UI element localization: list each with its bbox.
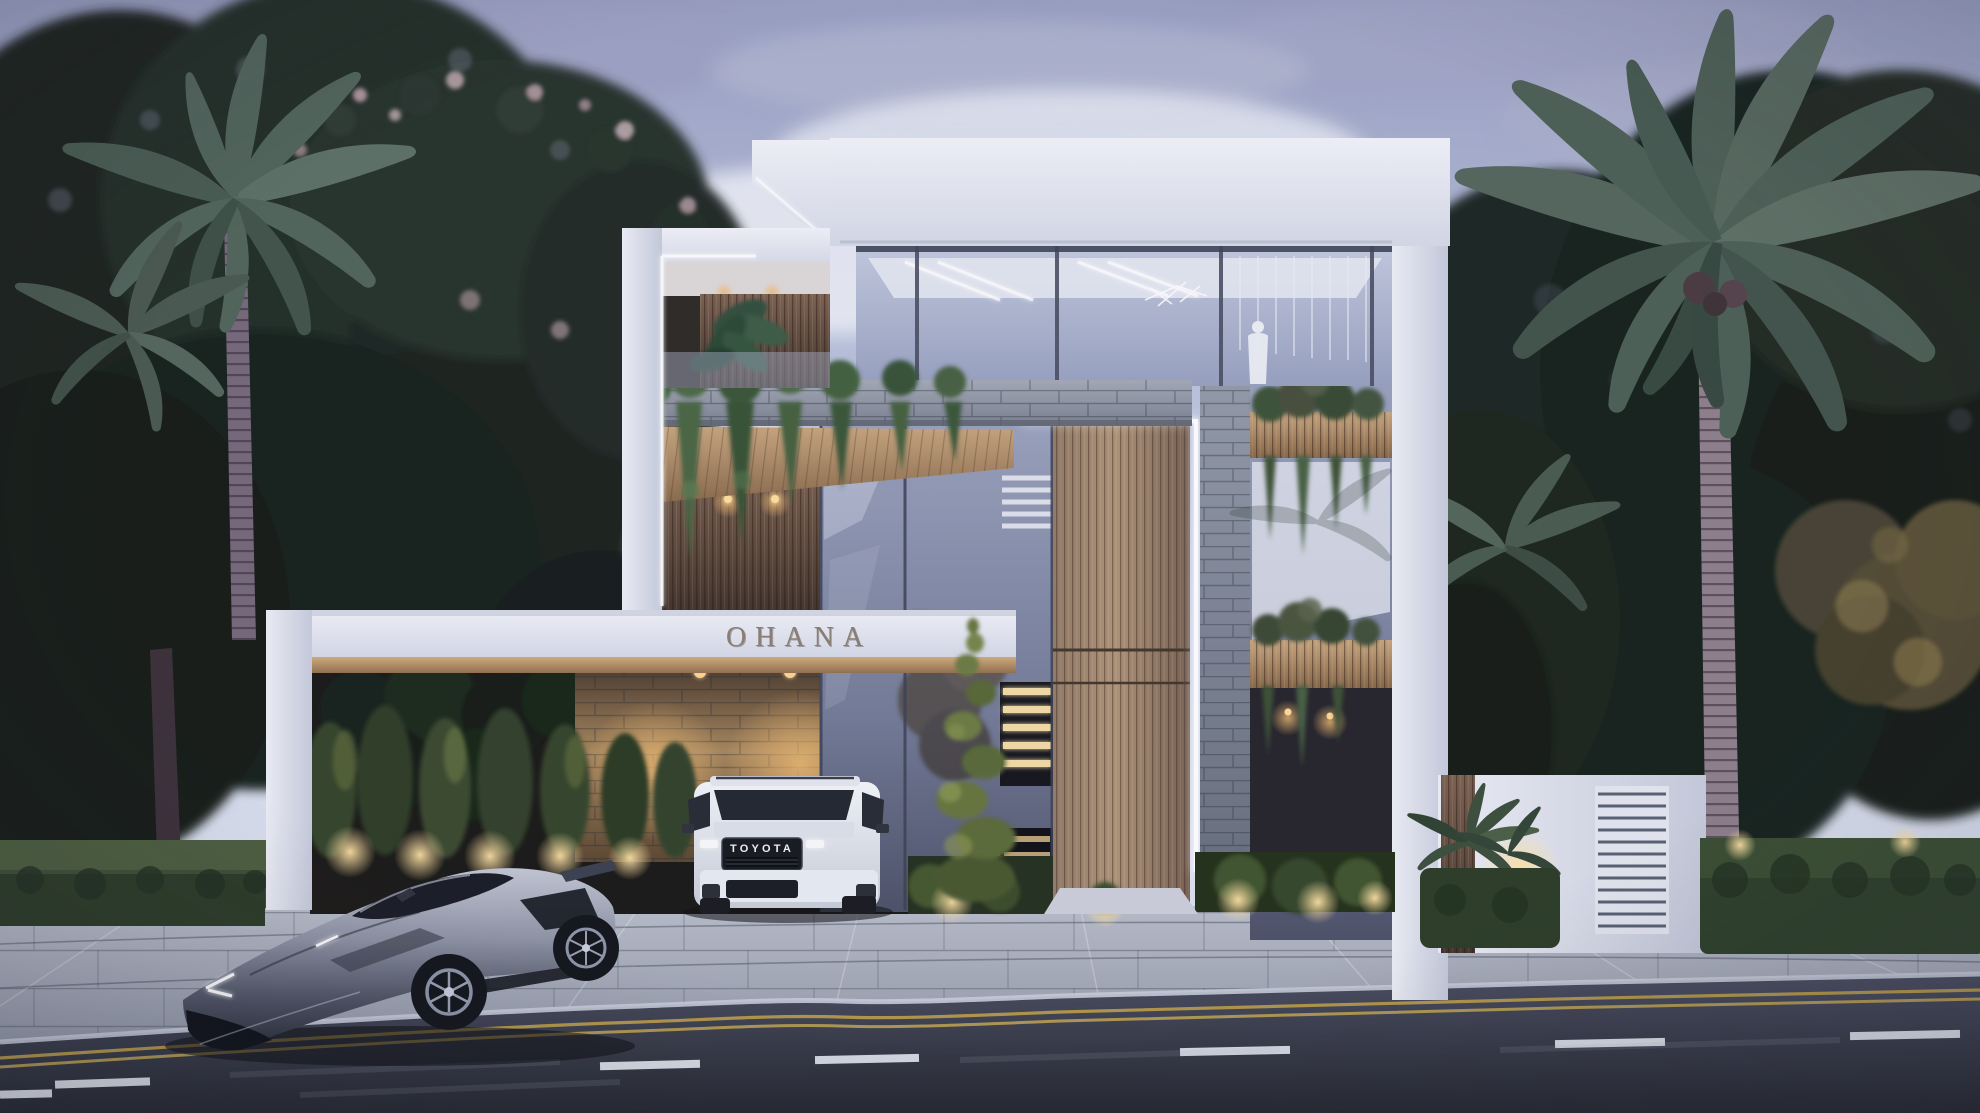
vignette [0,0,1980,1113]
render-canvas: OHANA OHANA [0,0,1980,1113]
villa-render-scene: OHANA OHANA [0,0,1980,1113]
